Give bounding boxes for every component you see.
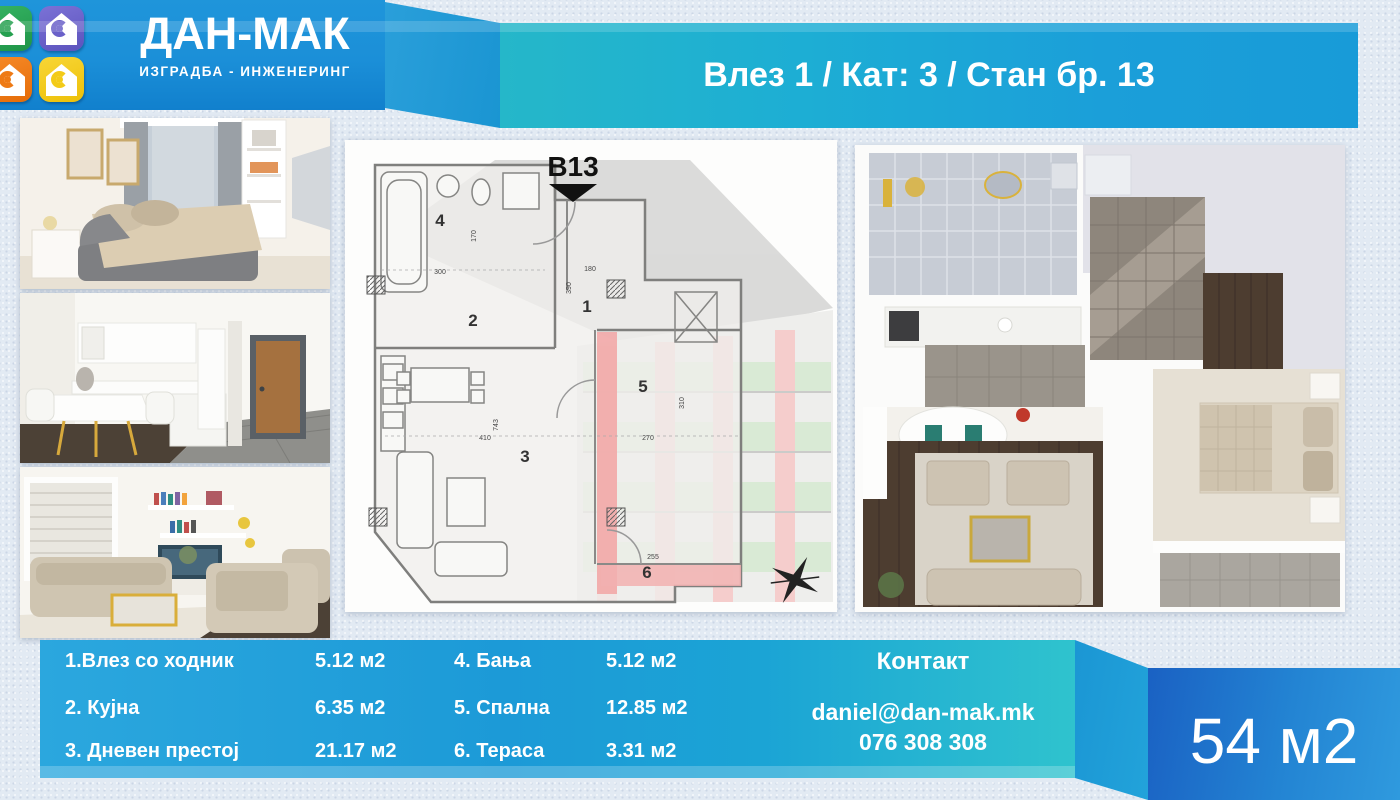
room-label: 2. Кујна [65, 697, 315, 720]
photo-kitchen [20, 293, 330, 463]
orange-house-tile-icon [0, 57, 32, 102]
room-number-4: 4 [435, 211, 445, 230]
c-ring-icon [0, 71, 16, 88]
yellow-house-tile-icon [39, 57, 84, 102]
floor-plan-drawing: 1 2 3 4 5 6 300 170 180 390 743 410 270 … [345, 140, 837, 612]
room-area: 5.12 м2 [606, 650, 676, 673]
dimension-label: 170 [471, 230, 478, 242]
photo-living-room [20, 467, 330, 638]
rooms-table-row: 3. Дневен престој 21.17 м2 6. Тераса 3.3… [65, 740, 676, 763]
house-icon [0, 13, 25, 45]
brand-logo-panel: ДАН-МАК ИЗГРАДБА - ИНЖЕНЕРИНГ [0, 0, 385, 110]
house-icon [46, 64, 77, 96]
room-area: 5.12 м2 [315, 650, 454, 673]
room-number-1: 1 [582, 297, 591, 316]
room-number-2: 2 [468, 311, 477, 330]
unit-banner-title: Влез 1 / Кат: 3 / Стан бр. 13 [703, 56, 1155, 95]
rooms-table-row: 2. Кујна 6.35 м2 5. Спална 12.85 м2 [65, 697, 688, 720]
contact-block: Контакт daniel@dan-mak.mk 076 308 308 [770, 640, 1076, 778]
room-area: 6.35 м2 [315, 697, 454, 720]
green-house-tile-icon [0, 6, 32, 51]
house-icon [46, 13, 77, 45]
dimension-label: 180 [584, 266, 596, 273]
dimension-label: 743 [493, 419, 500, 431]
brand-name: ДАН-МАК [108, 9, 382, 59]
room-area: 3.31 м2 [606, 740, 676, 763]
room-label: 3. Дневен престој [65, 740, 315, 763]
rooms-table-row: 1.Влез со ходник 5.12 м2 4. Бања 5.12 м2 [65, 650, 676, 673]
room-number-5: 5 [638, 377, 647, 396]
c-ring-icon [51, 71, 68, 88]
room-label: 4. Бања [454, 650, 606, 673]
room-label: 5. Спална [454, 697, 606, 720]
room-number-3: 3 [520, 447, 529, 466]
photo-bedroom [20, 118, 330, 289]
top-view-render-panel [855, 145, 1345, 612]
brand-text-block: ДАН-МАК ИЗГРАДБА - ИНЖЕНЕРИНГ [108, 9, 382, 79]
contact-phone: 076 308 308 [770, 729, 1076, 756]
kitchen-render-image [20, 293, 330, 463]
bedroom-render-image [20, 118, 330, 289]
terrace-area [1153, 541, 1345, 607]
purple-house-tile-icon [39, 6, 84, 51]
room-label: 6. Тераса [454, 740, 606, 763]
c-ring-icon [51, 20, 68, 37]
total-area-panel: 54 м2 [1148, 668, 1400, 800]
room-number-6: 6 [642, 563, 651, 582]
dimension-label: 310 [679, 397, 686, 409]
entry-hall-area [1090, 197, 1205, 360]
dimension-label: 255 [647, 554, 659, 561]
floor-plan-panel: 1 2 3 4 5 6 300 170 180 390 743 410 270 … [345, 140, 837, 612]
bedroom-area [1153, 369, 1345, 541]
contact-email: daniel@dan-mak.mk [770, 699, 1076, 726]
info-band: 1.Влез со ходник 5.12 м2 4. Бања 5.12 м2… [40, 640, 1075, 778]
brand-tagline: ИЗГРАДБА - ИНЖЕНЕРИНГ [108, 64, 382, 79]
brand-logo-icon [0, 0, 95, 110]
unit-label: B13 [547, 151, 598, 182]
room-area: 12.85 м2 [606, 697, 688, 720]
room-area: 21.17 м2 [315, 740, 454, 763]
room-label: 1.Влез со ходник [65, 650, 315, 673]
ribbon-fold-bottom-decoration [1075, 640, 1148, 800]
living-room-render-image [20, 467, 330, 638]
dimension-label: 390 [566, 282, 573, 294]
contact-heading: Контакт [770, 648, 1076, 676]
c-ring-icon [0, 20, 16, 37]
unit-banner: Влез 1 / Кат: 3 / Стан бр. 13 [500, 23, 1358, 128]
apartment-flyer: ДАН-МАК ИЗГРАДБА - ИНЖЕНЕРИНГ Влез 1 / К… [0, 0, 1400, 800]
ribbon-fold-top-decoration [385, 0, 500, 130]
total-area-value: 54 м2 [1190, 690, 1359, 778]
house-icon [0, 64, 25, 96]
top-view-render-image [855, 145, 1345, 612]
